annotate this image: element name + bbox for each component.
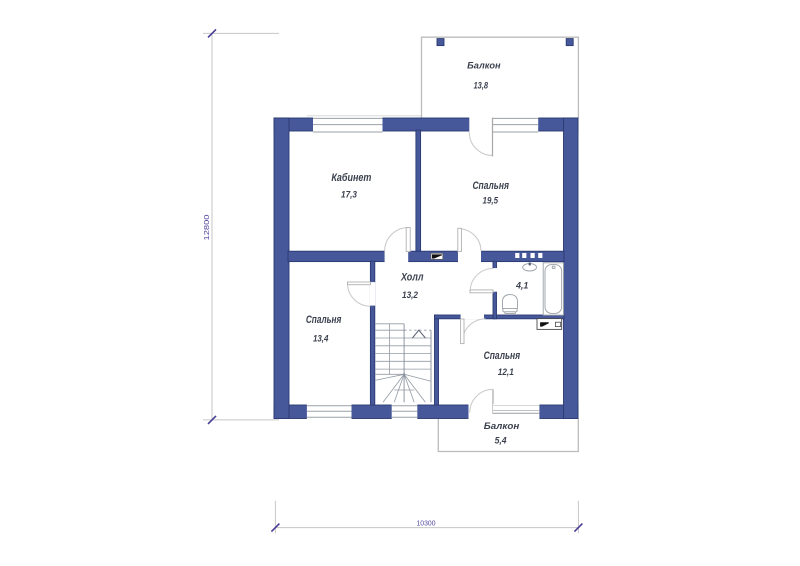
svg-text:4,1: 4,1: [515, 281, 528, 291]
svg-text:Спальня: Спальня: [484, 350, 521, 362]
svg-text:12,1: 12,1: [498, 367, 514, 378]
svg-text:Спальня: Спальня: [472, 180, 509, 192]
svg-text:10300: 10300: [417, 518, 436, 527]
svg-text:Кабинет: Кабинет: [331, 172, 371, 184]
svg-text:13,2: 13,2: [402, 290, 419, 301]
svg-text:5,4: 5,4: [495, 435, 507, 445]
svg-text:Балкон: Балкон: [484, 421, 520, 432]
svg-text:Балкон: Балкон: [467, 61, 501, 72]
svg-text:17,3: 17,3: [341, 190, 358, 201]
svg-text:19,5: 19,5: [483, 195, 499, 206]
svg-text:Спальня: Спальня: [306, 314, 342, 326]
svg-text:Холл: Холл: [400, 272, 423, 284]
svg-text:13,8: 13,8: [474, 81, 489, 91]
svg-text:12800: 12800: [202, 215, 211, 241]
svg-text:13,4: 13,4: [313, 334, 329, 345]
